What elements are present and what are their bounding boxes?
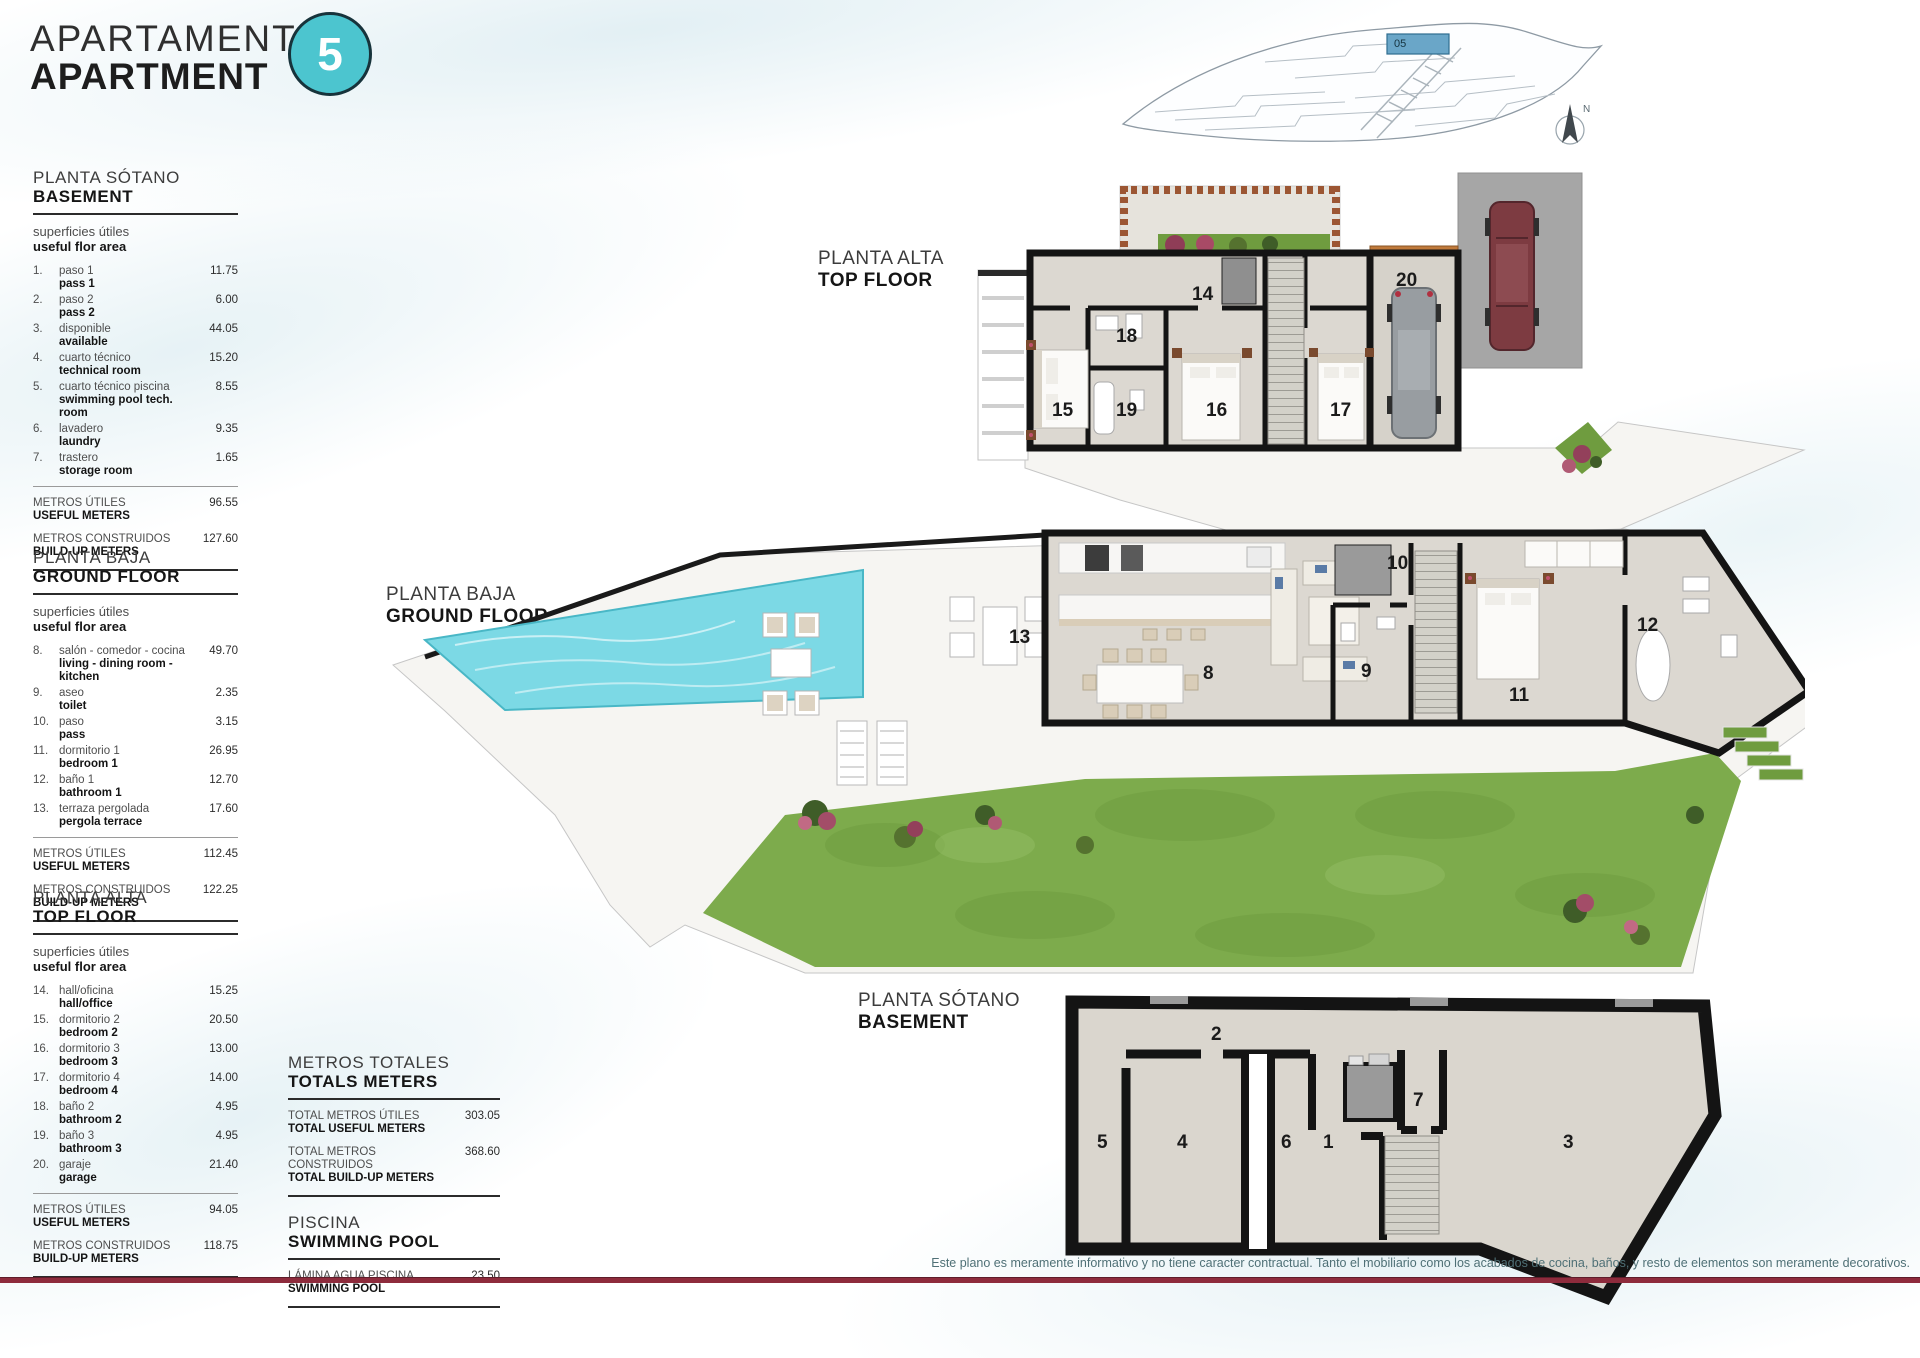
total-label-es: METROS ÚTILES bbox=[33, 848, 126, 860]
area-item-row: 18. baño 2 bathroom 2 4.95 bbox=[33, 1101, 238, 1127]
item-name-es: cuarto técnico bbox=[59, 352, 131, 364]
item-name-en: bedroom 1 bbox=[59, 758, 118, 770]
section-title-es: PLANTA BAJA bbox=[33, 548, 238, 567]
rule bbox=[33, 593, 238, 595]
item-name-en: pass bbox=[59, 729, 85, 741]
ground-floor-plan: 8 9 10 11 12 13 bbox=[385, 515, 1805, 985]
utility-closet bbox=[1335, 545, 1391, 595]
item-name-es: dormitorio 1 bbox=[59, 745, 120, 757]
rule bbox=[288, 1306, 500, 1308]
area-item-row: 7. trastero storage room 1.65 bbox=[33, 452, 238, 478]
item-number: 3. bbox=[33, 323, 59, 349]
rule bbox=[33, 213, 238, 215]
ground-floor-area-table: PLANTA BAJA GROUND FLOOR superficies úti… bbox=[33, 548, 238, 922]
item-value: 14.00 bbox=[196, 1072, 238, 1098]
total-label-en: SWIMMING POOL bbox=[288, 1283, 385, 1295]
total-label-es: METROS CONSTRUIDOS bbox=[33, 533, 170, 545]
room-label-12: 12 bbox=[1637, 615, 1658, 637]
area-item-list: 1. paso 1 pass 1 11.75 2. paso 2 pass 2 … bbox=[33, 265, 238, 478]
item-name-es: aseo bbox=[59, 687, 84, 699]
room-label-19: 19 bbox=[1116, 400, 1137, 422]
item-value: 12.70 bbox=[196, 774, 238, 800]
rule bbox=[33, 837, 238, 838]
item-name-en: laundry bbox=[59, 436, 101, 448]
compass-icon bbox=[1556, 104, 1584, 144]
area-item-row: 11. dormitorio 1 bedroom 1 26.95 bbox=[33, 745, 238, 771]
area-item-row: 19. baño 3 bathroom 3 4.95 bbox=[33, 1130, 238, 1156]
section-title-es: PLANTA ALTA bbox=[33, 888, 238, 907]
item-number: 16. bbox=[33, 1043, 59, 1069]
rule bbox=[288, 1098, 500, 1100]
totals-title-es: METROS TOTALES bbox=[288, 1053, 500, 1072]
total-label-en: USEFUL METERS bbox=[33, 510, 130, 522]
total-value: 118.75 bbox=[196, 1240, 238, 1266]
subtitle-es: superficies útiles bbox=[33, 224, 238, 239]
item-name-en: bathroom 2 bbox=[59, 1114, 122, 1126]
item-number: 9. bbox=[33, 687, 59, 713]
page-title: APARTAMENTO APARTMENT bbox=[30, 18, 327, 97]
item-name-es: garaje bbox=[59, 1159, 91, 1171]
item-name-es: paso 2 bbox=[59, 294, 94, 306]
total-row: METROS ÚTILES USEFUL METERS 112.45 bbox=[33, 848, 238, 874]
item-number: 5. bbox=[33, 381, 59, 420]
item-name-es: paso bbox=[59, 716, 84, 728]
item-value: 26.95 bbox=[196, 745, 238, 771]
room-label-15: 15 bbox=[1052, 400, 1073, 422]
total-value: 23.50 bbox=[458, 1270, 500, 1296]
area-item-row: 14. hall/oficina hall/office 15.25 bbox=[33, 985, 238, 1011]
item-value: 8.55 bbox=[196, 381, 238, 420]
total-row: TOTAL METROS CONSTRUIDOS TOTAL BUILD-UP … bbox=[288, 1146, 500, 1185]
area-item-row: 2. paso 2 pass 2 6.00 bbox=[33, 294, 238, 320]
item-value: 4.95 bbox=[196, 1101, 238, 1127]
total-value: 94.05 bbox=[196, 1204, 238, 1230]
section-title-en: BASEMENT bbox=[33, 187, 238, 206]
total-label-en: TOTAL USEFUL METERS bbox=[288, 1123, 425, 1135]
item-value: 15.25 bbox=[196, 985, 238, 1011]
item-name-es: salón - comedor - cocina bbox=[59, 645, 185, 657]
subtitle-en: useful flor area bbox=[33, 959, 238, 974]
item-value: 1.65 bbox=[196, 452, 238, 478]
item-name-en: bedroom 2 bbox=[59, 1027, 118, 1039]
item-name-en: garage bbox=[59, 1172, 97, 1184]
item-name-es: dormitorio 4 bbox=[59, 1072, 120, 1084]
pool-title-en: SWIMMING POOL bbox=[288, 1232, 500, 1251]
item-name-es: paso 1 bbox=[59, 265, 94, 277]
item-name-en: bathroom 1 bbox=[59, 787, 122, 799]
total-label-en: USEFUL METERS bbox=[33, 861, 130, 873]
top-floor-plan: 14 15 16 17 18 19 20 bbox=[970, 158, 1810, 568]
room-label-14: 14 bbox=[1192, 284, 1213, 306]
room-label-10: 10 bbox=[1387, 553, 1408, 575]
site-plan-drawing bbox=[1115, 2, 1675, 172]
disclaimer-text: Este plano es meramente informativo y no… bbox=[931, 1256, 1910, 1270]
area-item-row: 20. garaje garage 21.40 bbox=[33, 1159, 238, 1185]
total-value: 368.60 bbox=[458, 1146, 500, 1185]
room-label-18: 18 bbox=[1116, 326, 1137, 348]
total-label-es: METROS ÚTILES bbox=[33, 1204, 126, 1216]
garage-car-grey bbox=[1387, 288, 1441, 438]
item-value: 3.15 bbox=[196, 716, 238, 742]
item-value: 44.05 bbox=[196, 323, 238, 349]
item-number: 17. bbox=[33, 1072, 59, 1098]
subtitle-en: useful flor area bbox=[33, 619, 238, 634]
totals-title-en: TOTALS METERS bbox=[288, 1072, 500, 1091]
area-item-row: 1. paso 1 pass 1 11.75 bbox=[33, 265, 238, 291]
unit-number-badge: 5 bbox=[288, 12, 372, 96]
item-name-es: terraza pergolada bbox=[59, 803, 149, 815]
item-value: 6.00 bbox=[196, 294, 238, 320]
item-name-en: toilet bbox=[59, 700, 86, 712]
item-number: 6. bbox=[33, 423, 59, 449]
parked-car-maroon bbox=[1485, 202, 1539, 350]
page-title-en: APARTMENT bbox=[30, 57, 327, 97]
item-number: 1. bbox=[33, 265, 59, 291]
room-label-9: 9 bbox=[1361, 661, 1372, 683]
room-label-11: 11 bbox=[1509, 685, 1529, 707]
item-number: 4. bbox=[33, 352, 59, 378]
total-label-es: TOTAL METROS CONSTRUIDOS bbox=[288, 1146, 376, 1171]
item-name-es: hall/oficina bbox=[59, 985, 113, 997]
item-value: 49.70 bbox=[196, 645, 238, 684]
total-row: METROS ÚTILES USEFUL METERS 96.55 bbox=[33, 497, 238, 523]
area-item-row: 3. disponible available 44.05 bbox=[33, 323, 238, 349]
site-location-plan: 05 N bbox=[1115, 2, 1675, 172]
item-number: 7. bbox=[33, 452, 59, 478]
grand-totals-table: METROS TOTALES TOTALS METERS TOTAL METRO… bbox=[288, 1053, 500, 1308]
area-item-row: 10. paso pass 3.15 bbox=[33, 716, 238, 742]
item-name-en: living - dining room - kitchen bbox=[59, 658, 173, 683]
total-row: METROS ÚTILES USEFUL METERS 94.05 bbox=[33, 1204, 238, 1230]
item-name-en: available bbox=[59, 336, 108, 348]
basement-plan-label: PLANTA SÓTANO BASEMENT bbox=[858, 990, 1020, 1034]
item-name-en: storage room bbox=[59, 465, 133, 477]
area-item-row: 5. cuarto técnico piscina swimming pool … bbox=[33, 381, 238, 420]
area-item-row: 8. salón - comedor - cocina living - din… bbox=[33, 645, 238, 684]
subtitle-es: superficies útiles bbox=[33, 604, 238, 619]
item-name-en: pergola terrace bbox=[59, 816, 142, 828]
compass-north-label: N bbox=[1583, 104, 1590, 115]
rule bbox=[288, 1258, 500, 1260]
staircase bbox=[1385, 1136, 1439, 1234]
bed-room16 bbox=[1172, 348, 1252, 440]
top-floor-area-table: PLANTA ALTA TOP FLOOR superficies útiles… bbox=[33, 888, 238, 1278]
total-label-es: METROS CONSTRUIDOS bbox=[33, 1240, 170, 1252]
room-label-13: 13 bbox=[1009, 627, 1030, 649]
totals-list: METROS ÚTILES USEFUL METERS 94.05 METROS… bbox=[33, 1204, 238, 1266]
plan-label-es: PLANTA ALTA bbox=[818, 248, 944, 270]
item-value: 13.00 bbox=[196, 1043, 238, 1069]
total-row: METROS CONSTRUIDOS BUILD-UP METERS 118.7… bbox=[33, 1240, 238, 1266]
item-name-es: cuarto técnico piscina bbox=[59, 381, 170, 393]
basement-area-table: PLANTA SÓTANO BASEMENT superficies útile… bbox=[33, 168, 238, 571]
item-name-es: dormitorio 2 bbox=[59, 1014, 120, 1026]
room-label-4: 4 bbox=[1177, 1132, 1188, 1154]
item-name-es: trastero bbox=[59, 452, 98, 464]
bed-room17 bbox=[1309, 348, 1374, 440]
section-title-en: GROUND FLOOR bbox=[33, 567, 238, 586]
bed-room15 bbox=[1026, 340, 1088, 440]
room-label-3: 3 bbox=[1563, 1132, 1574, 1154]
grand-totals-list: TOTAL METROS ÚTILES TOTAL USEFUL METERS … bbox=[288, 1110, 500, 1185]
area-item-row: 6. lavadero laundry 9.35 bbox=[33, 423, 238, 449]
item-value: 11.75 bbox=[196, 265, 238, 291]
rule bbox=[33, 1193, 238, 1194]
item-number: 14. bbox=[33, 985, 59, 1011]
total-row: TOTAL METROS ÚTILES TOTAL USEFUL METERS … bbox=[288, 1110, 500, 1136]
item-name-en: bedroom 3 bbox=[59, 1056, 118, 1068]
pool-totals-list: LÁMINA AGUA PISCINA SWIMMING POOL 23.50 bbox=[288, 1270, 500, 1296]
total-value: 112.45 bbox=[196, 848, 238, 874]
item-number: 13. bbox=[33, 803, 59, 829]
room-label-1: 1 bbox=[1323, 1132, 1334, 1154]
room-label-7: 7 bbox=[1413, 1090, 1424, 1112]
room-label-17: 17 bbox=[1330, 400, 1351, 422]
staircase bbox=[1415, 551, 1457, 713]
item-value: 20.50 bbox=[196, 1014, 238, 1040]
area-item-row: 15. dormitorio 2 bedroom 2 20.50 bbox=[33, 1014, 238, 1040]
item-number: 20. bbox=[33, 1159, 59, 1185]
total-label-en: USEFUL METERS bbox=[33, 1217, 130, 1229]
item-number: 8. bbox=[33, 645, 59, 684]
room-label-8: 8 bbox=[1203, 663, 1214, 685]
item-name-es: baño 3 bbox=[59, 1130, 94, 1142]
item-number: 12. bbox=[33, 774, 59, 800]
item-name-es: dormitorio 3 bbox=[59, 1043, 120, 1055]
item-number: 11. bbox=[33, 745, 59, 771]
plan-label-en: TOP FLOOR bbox=[818, 270, 944, 292]
item-number: 15. bbox=[33, 1014, 59, 1040]
footer-rule bbox=[0, 1277, 1920, 1283]
item-name-en: pass 2 bbox=[59, 307, 95, 319]
lightwell bbox=[1249, 1054, 1267, 1249]
plan-label-es: PLANTA SÓTANO bbox=[858, 990, 1020, 1012]
total-value: 96.55 bbox=[196, 497, 238, 523]
total-label-en: BUILD-UP METERS bbox=[33, 1253, 139, 1265]
top-floor-plan-label: PLANTA ALTA TOP FLOOR bbox=[818, 248, 944, 292]
area-item-row: 16. dormitorio 3 bedroom 3 13.00 bbox=[33, 1043, 238, 1069]
item-value: 4.95 bbox=[196, 1130, 238, 1156]
total-label-es: METROS ÚTILES bbox=[33, 497, 126, 509]
item-name-en: pass 1 bbox=[59, 278, 95, 290]
ground-floor-plan-drawing bbox=[385, 515, 1805, 985]
staircase bbox=[1268, 258, 1304, 444]
site-unit-label: 05 bbox=[1394, 38, 1406, 50]
total-label-en: TOTAL BUILD-UP METERS bbox=[288, 1172, 434, 1184]
area-item-list: 8. salón - comedor - cocina living - din… bbox=[33, 645, 238, 829]
area-item-row: 13. terraza pergolada pergola terrace 17… bbox=[33, 803, 238, 829]
rule bbox=[33, 933, 238, 935]
item-number: 18. bbox=[33, 1101, 59, 1127]
item-name-es: disponible bbox=[59, 323, 111, 335]
unit-number: 5 bbox=[317, 27, 343, 81]
top-floor-plan-drawing bbox=[970, 158, 1810, 568]
room-label-2: 2 bbox=[1211, 1024, 1222, 1046]
site-outline bbox=[1123, 23, 1601, 141]
section-title-en: TOP FLOOR bbox=[33, 907, 238, 926]
item-value: 21.40 bbox=[196, 1159, 238, 1185]
room-label-6: 6 bbox=[1281, 1132, 1292, 1154]
room-label-20: 20 bbox=[1396, 270, 1417, 292]
item-value: 17.60 bbox=[196, 803, 238, 829]
item-value: 15.20 bbox=[196, 352, 238, 378]
item-number: 19. bbox=[33, 1130, 59, 1156]
item-name-en: hall/office bbox=[59, 998, 113, 1010]
area-item-row: 17. dormitorio 4 bedroom 4 14.00 bbox=[33, 1072, 238, 1098]
item-name-en: bathroom 3 bbox=[59, 1143, 122, 1155]
subtitle-es: superficies útiles bbox=[33, 944, 238, 959]
item-number: 10. bbox=[33, 716, 59, 742]
item-name-es: baño 2 bbox=[59, 1101, 94, 1113]
area-item-row: 9. aseo toilet 2.35 bbox=[33, 687, 238, 713]
item-name-en: swimming pool tech. room bbox=[59, 394, 173, 419]
item-value: 9.35 bbox=[196, 423, 238, 449]
slat-panel bbox=[978, 270, 1028, 460]
floor-plan-sheet: APARTAMENTO APARTMENT 5 PLANTA SÓTANO BA… bbox=[0, 0, 1920, 1358]
elevator-machine bbox=[1345, 1054, 1395, 1120]
total-value: 303.05 bbox=[458, 1110, 500, 1136]
rule bbox=[33, 486, 238, 487]
item-name-es: baño 1 bbox=[59, 774, 94, 786]
item-name-es: lavadero bbox=[59, 423, 103, 435]
item-name-en: bedroom 4 bbox=[59, 1085, 118, 1097]
room-label-16: 16 bbox=[1206, 400, 1227, 422]
item-value: 2.35 bbox=[196, 687, 238, 713]
pool-title-es: PISCINA bbox=[288, 1213, 500, 1232]
section-title-es: PLANTA SÓTANO bbox=[33, 168, 238, 187]
plan-label-en: BASEMENT bbox=[858, 1012, 1020, 1034]
room-label-5: 5 bbox=[1097, 1132, 1108, 1154]
page-title-es: APARTAMENTO bbox=[30, 18, 327, 60]
item-number: 2. bbox=[33, 294, 59, 320]
wardrobe bbox=[1222, 258, 1256, 304]
total-row: LÁMINA AGUA PISCINA SWIMMING POOL 23.50 bbox=[288, 1270, 500, 1296]
item-name-en: technical room bbox=[59, 365, 141, 377]
area-item-row: 12. baño 1 bathroom 1 12.70 bbox=[33, 774, 238, 800]
area-item-row: 4. cuarto técnico technical room 15.20 bbox=[33, 352, 238, 378]
area-item-list: 14. hall/oficina hall/office 15.25 15. d… bbox=[33, 985, 238, 1185]
subtitle-en: useful flor area bbox=[33, 239, 238, 254]
total-label-es: TOTAL METROS ÚTILES bbox=[288, 1110, 419, 1122]
